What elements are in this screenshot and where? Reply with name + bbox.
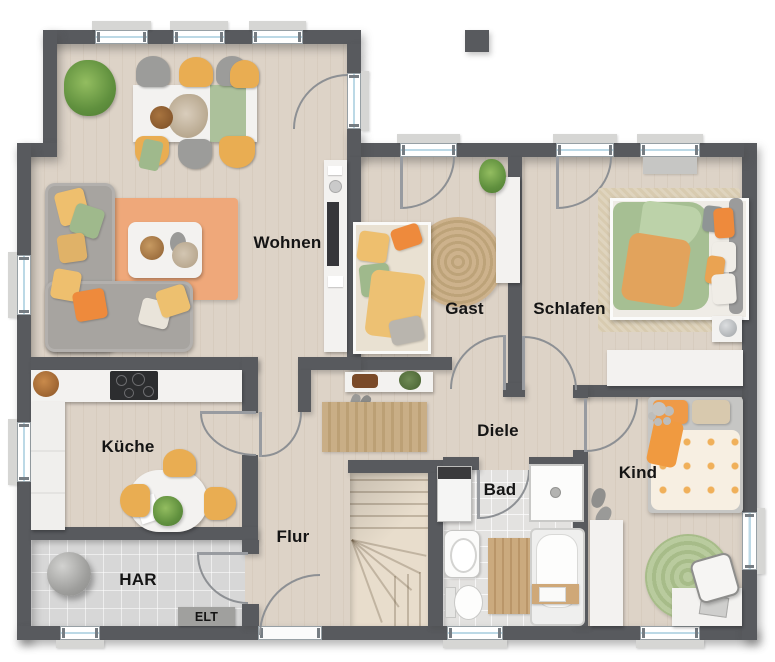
window-sill (92, 21, 151, 30)
window (447, 626, 503, 640)
wall (348, 357, 452, 370)
decor-bowl (140, 236, 164, 260)
pillow (692, 400, 730, 424)
door-leaf (503, 335, 506, 390)
wardrobe (607, 350, 743, 386)
table-plant (153, 496, 183, 526)
window (173, 30, 225, 44)
water-heater (47, 552, 91, 596)
room-label-flur: Flur (268, 527, 318, 547)
window-sill (757, 508, 765, 574)
shower-drain (550, 487, 561, 498)
window (640, 143, 700, 157)
table-runner (210, 85, 246, 142)
staircase (350, 473, 428, 626)
window (60, 626, 100, 640)
door-leaf (556, 157, 559, 209)
wall (31, 527, 258, 540)
window-sill (170, 21, 228, 30)
wall (242, 357, 258, 413)
dried-plant (172, 242, 198, 268)
dining-chair (219, 136, 255, 168)
pillow (711, 273, 737, 305)
wall (43, 30, 57, 144)
burner (143, 386, 154, 397)
lamp (719, 319, 737, 337)
runner-rug (322, 402, 427, 452)
wall (347, 44, 361, 74)
window (95, 30, 148, 44)
fruit-bowl (33, 371, 59, 397)
kitchen-chair (204, 487, 236, 520)
room-label-wohnen: Wohnen (240, 233, 335, 253)
door-leaf (400, 157, 403, 209)
window-sill (56, 640, 104, 648)
room-label-bad: Bad (480, 480, 520, 500)
kitchen-chair (120, 484, 150, 517)
wall (17, 143, 31, 640)
room-label-har: HAR (112, 570, 164, 590)
door-leaf (200, 411, 256, 414)
decor-plant (399, 371, 421, 390)
door-leaf (522, 336, 525, 390)
burner (132, 373, 145, 386)
door-leaf (259, 412, 262, 457)
pillow (713, 207, 735, 238)
flower-mirror (652, 402, 666, 416)
dining-chair (230, 60, 259, 88)
door-leaf (197, 552, 248, 555)
dining-chair (179, 57, 213, 87)
terrace-door (556, 143, 614, 157)
elt-label: ELT (195, 610, 218, 624)
room-label-gast: Gast (437, 299, 492, 319)
window (17, 422, 31, 482)
window-sill (443, 640, 507, 648)
window-sill (397, 134, 460, 143)
elt-panel: ELT (178, 607, 235, 626)
window-sill (553, 134, 617, 143)
room-label-kind: Kind (610, 463, 666, 483)
dining-chair (178, 139, 212, 169)
burner (116, 375, 127, 386)
room-label-schlafen: Schlafen (527, 299, 612, 319)
chimney (465, 30, 489, 52)
window-sill (8, 252, 17, 318)
wall (575, 385, 742, 397)
decor-bowl (150, 106, 173, 129)
window (742, 512, 757, 570)
window-sill (361, 71, 369, 131)
basin-bowl (450, 538, 477, 573)
window (17, 255, 31, 315)
blanket (620, 232, 692, 309)
wall (298, 357, 361, 370)
kitchen-chair (163, 449, 196, 477)
shelf (496, 177, 520, 283)
room-label-diele: Diele (468, 421, 528, 441)
speaker (329, 180, 342, 193)
terrace-door (347, 73, 361, 129)
window (640, 626, 700, 640)
wall (347, 129, 361, 160)
window-sill (637, 134, 703, 143)
wall (348, 460, 443, 473)
potted-plant (64, 60, 116, 116)
shelf-decor (328, 276, 343, 287)
pillow (356, 230, 390, 264)
window-sill (249, 21, 306, 30)
floor-plan: Wohnen Gast Schlafen Küche Diele (0, 0, 775, 662)
wall (242, 604, 259, 626)
kitchen-cabinets (31, 402, 65, 530)
bag (352, 374, 378, 388)
door-leaf (584, 399, 587, 452)
wardrobe (590, 520, 623, 626)
terrace-door (400, 143, 457, 157)
washing-machine (437, 466, 472, 522)
toilet-bowl (454, 585, 483, 620)
wall (31, 357, 258, 370)
burner (124, 388, 134, 398)
bath-mat (488, 538, 530, 614)
dining-chair (136, 56, 170, 87)
window (252, 30, 303, 44)
window-sill (636, 640, 704, 648)
shelf-decor (328, 166, 342, 175)
pillow (72, 287, 109, 322)
towel (539, 587, 566, 602)
pillow (56, 232, 88, 264)
potted-plant (479, 159, 506, 193)
room-label-kueche: Küche (100, 437, 156, 457)
window-sill (8, 419, 17, 485)
radiator (643, 157, 697, 174)
outside-mask (0, 0, 43, 143)
wall (298, 370, 311, 412)
